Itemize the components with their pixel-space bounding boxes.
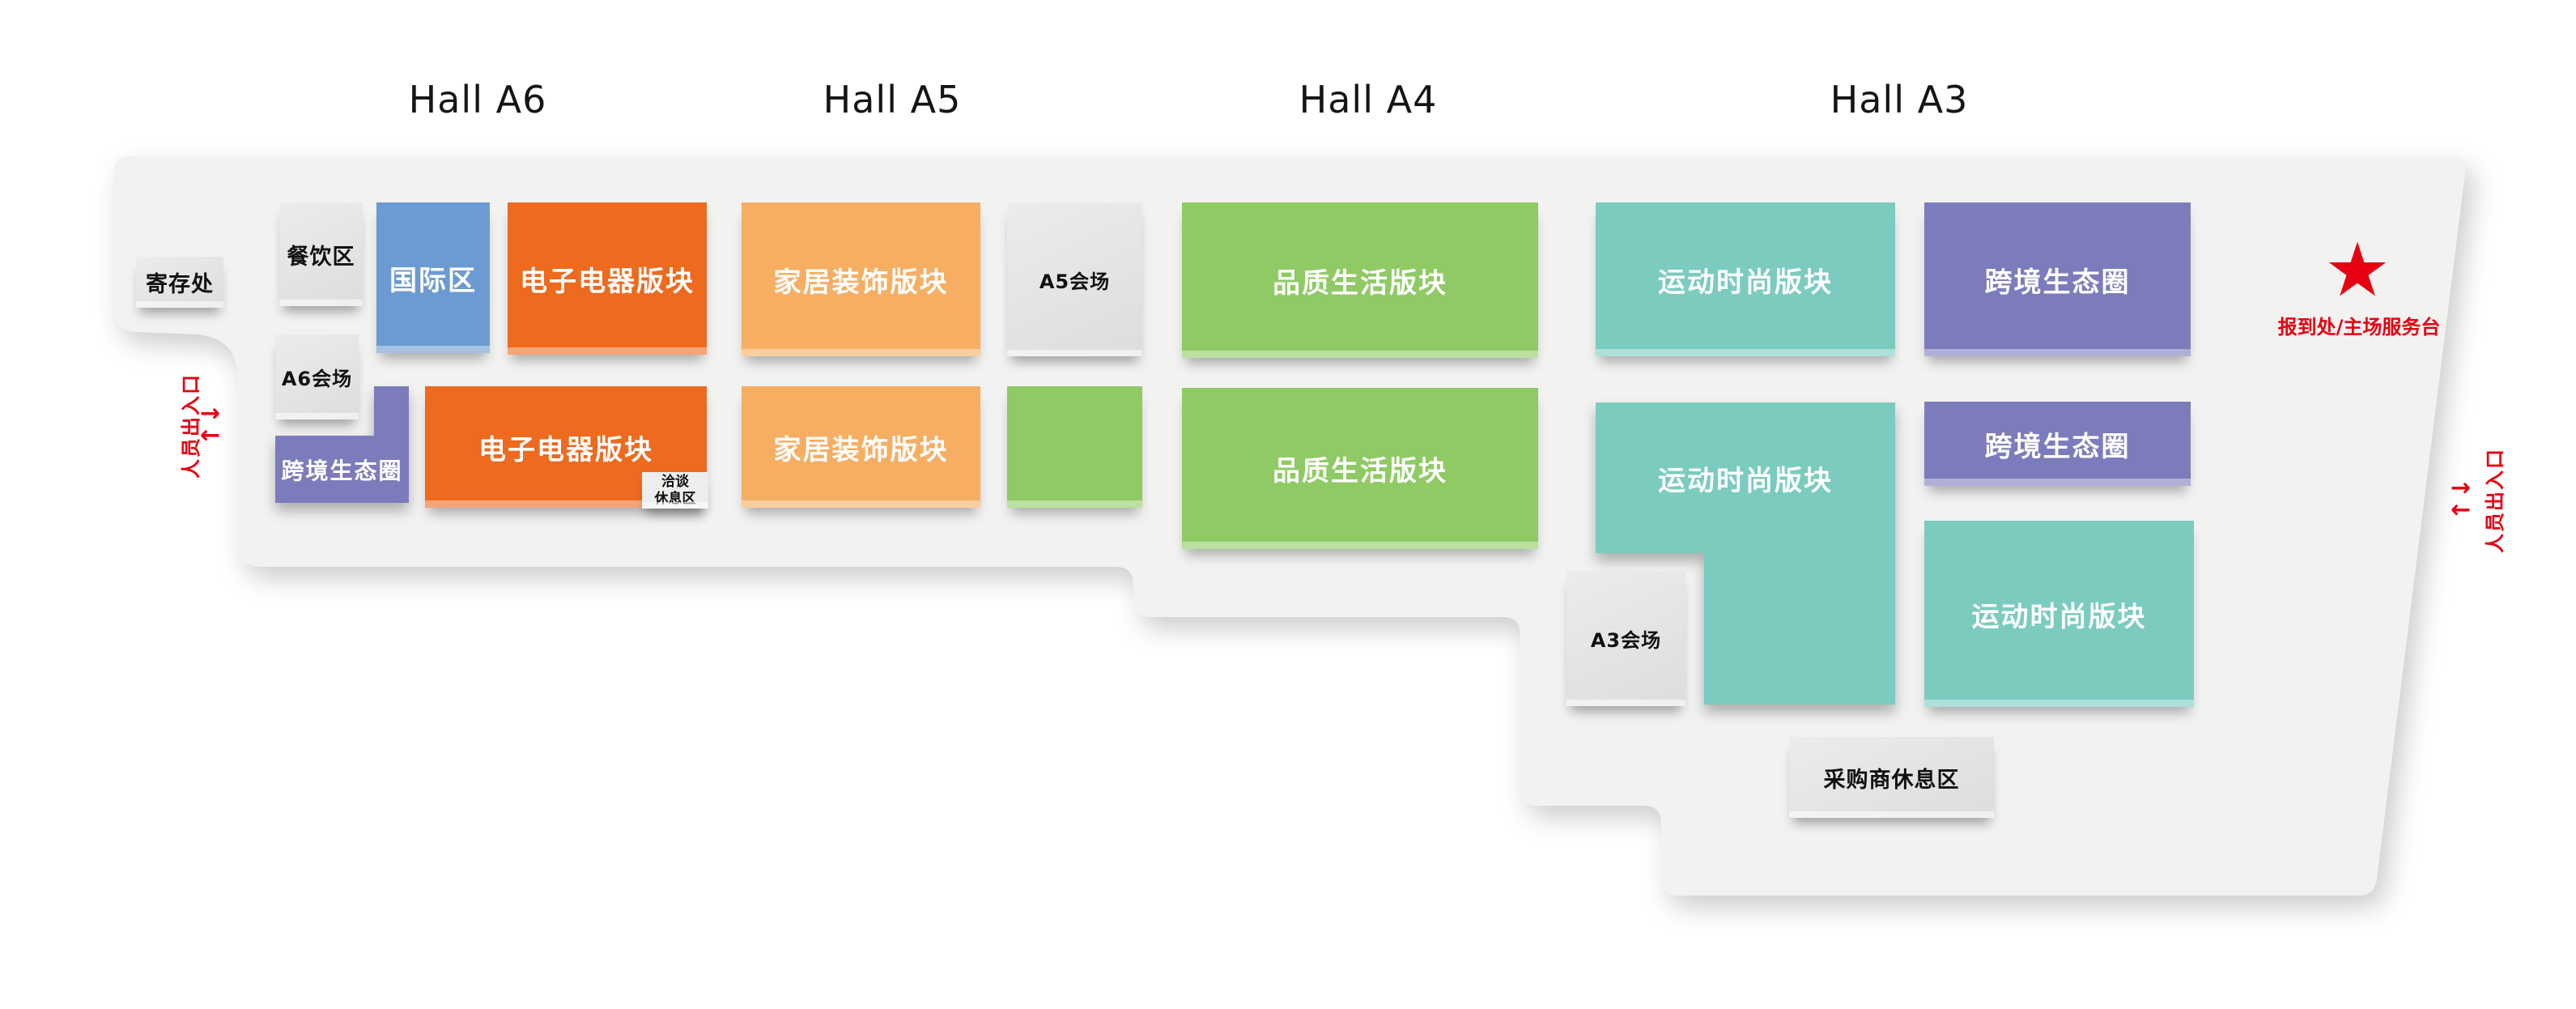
- area-buyer-lounge-label: 采购商休息区: [1824, 762, 1960, 794]
- area-home-decor-top-label: 家居装饰版块: [774, 260, 949, 300]
- area-luggage-label: 寄存处: [146, 266, 214, 298]
- exhibition-floor-plan: Hall A6 Hall A5 Hall A4 Hall A3 寄存处 餐饮区 …: [0, 0, 2576, 1009]
- area-electronics-top: 电子电器版块: [508, 202, 707, 355]
- area-sports-fashion-bottom-label: 运动时尚版块: [1972, 594, 2147, 634]
- area-buyer-lounge: 采购商休息区: [1789, 737, 1994, 818]
- area-negotiation-rest: 洽谈 休息区: [642, 472, 708, 509]
- area-dining: 餐饮区: [279, 202, 363, 306]
- area-a6-cross-border: 跨境生态圈: [275, 386, 409, 503]
- hall-a5-title: Hall A5: [787, 78, 997, 121]
- area-negotiation-rest-line2: 休息区: [655, 491, 696, 508]
- area-negotiation-rest-line1: 洽谈: [661, 474, 689, 491]
- hall-a4-title: Hall A4: [1263, 78, 1473, 121]
- area-a5-green-block: [1007, 386, 1142, 508]
- area-home-decor-bottom: 家居装饰版块: [742, 386, 980, 508]
- area-dining-label: 餐饮区: [287, 239, 355, 270]
- area-international-label: 国际区: [389, 258, 477, 298]
- area-quality-life-top: 品质生活版块: [1182, 202, 1538, 358]
- area-sports-fashion-mid-label: 运动时尚版块: [1596, 402, 1895, 553]
- area-a3-cross-border-top: 跨境生态圈: [1924, 202, 2191, 356]
- area-luggage: 寄存处: [136, 257, 223, 308]
- service-desk-label: 报到处/主场服务台: [2257, 311, 2461, 339]
- area-a5-meeting: A5会场: [1007, 202, 1142, 356]
- area-sports-fashion-top: 运动时尚版块: [1596, 202, 1895, 356]
- entrance-right-arrows: → ←: [2451, 477, 2471, 521]
- area-a5-meeting-label: A5会场: [1039, 266, 1110, 294]
- area-a6-cross-border-label: 跨境生态圈: [275, 436, 409, 503]
- area-a3-cross-border-top-label: 跨境生态圈: [1985, 260, 2131, 300]
- area-sports-fashion-top-label: 运动时尚版块: [1658, 260, 1833, 300]
- area-quality-life-bottom-label: 品质生活版块: [1273, 449, 1447, 488]
- area-electronics-top-label: 电子电器版块: [520, 259, 695, 299]
- area-home-decor-bottom-label: 家居装饰版块: [774, 428, 949, 467]
- arrow-left-icon: ←: [200, 424, 220, 446]
- area-a3-cross-border-bottom: 跨境生态圈: [1924, 402, 2191, 486]
- area-a3-meeting: A3会场: [1566, 571, 1685, 706]
- hall-a6-title: Hall A6: [372, 78, 583, 121]
- arrow-left-icon: ←: [2451, 499, 2471, 521]
- area-quality-life-bottom: 品质生活版块: [1182, 388, 1538, 549]
- area-international: 国际区: [376, 202, 490, 353]
- entrance-left-label: 人员出入口: [175, 345, 198, 507]
- service-desk-star-icon: ★: [2314, 233, 2401, 308]
- area-sports-fashion-bottom: 运动时尚版块: [1924, 521, 2194, 707]
- entrance-left-arrows: → ←: [200, 402, 220, 446]
- area-quality-life-top-label: 品质生活版块: [1273, 261, 1447, 300]
- hall-a3-title: Hall A3: [1794, 78, 2004, 121]
- area-electronics-bottom-label: 电子电器版块: [478, 428, 653, 467]
- area-home-decor-top: 家居装饰版块: [742, 202, 980, 356]
- area-a3-meeting-label: A3会场: [1591, 624, 1661, 653]
- area-a3-cross-border-bottom-label: 跨境生态圈: [1985, 424, 2131, 464]
- entrance-right-label: 人员出入口: [2479, 419, 2502, 581]
